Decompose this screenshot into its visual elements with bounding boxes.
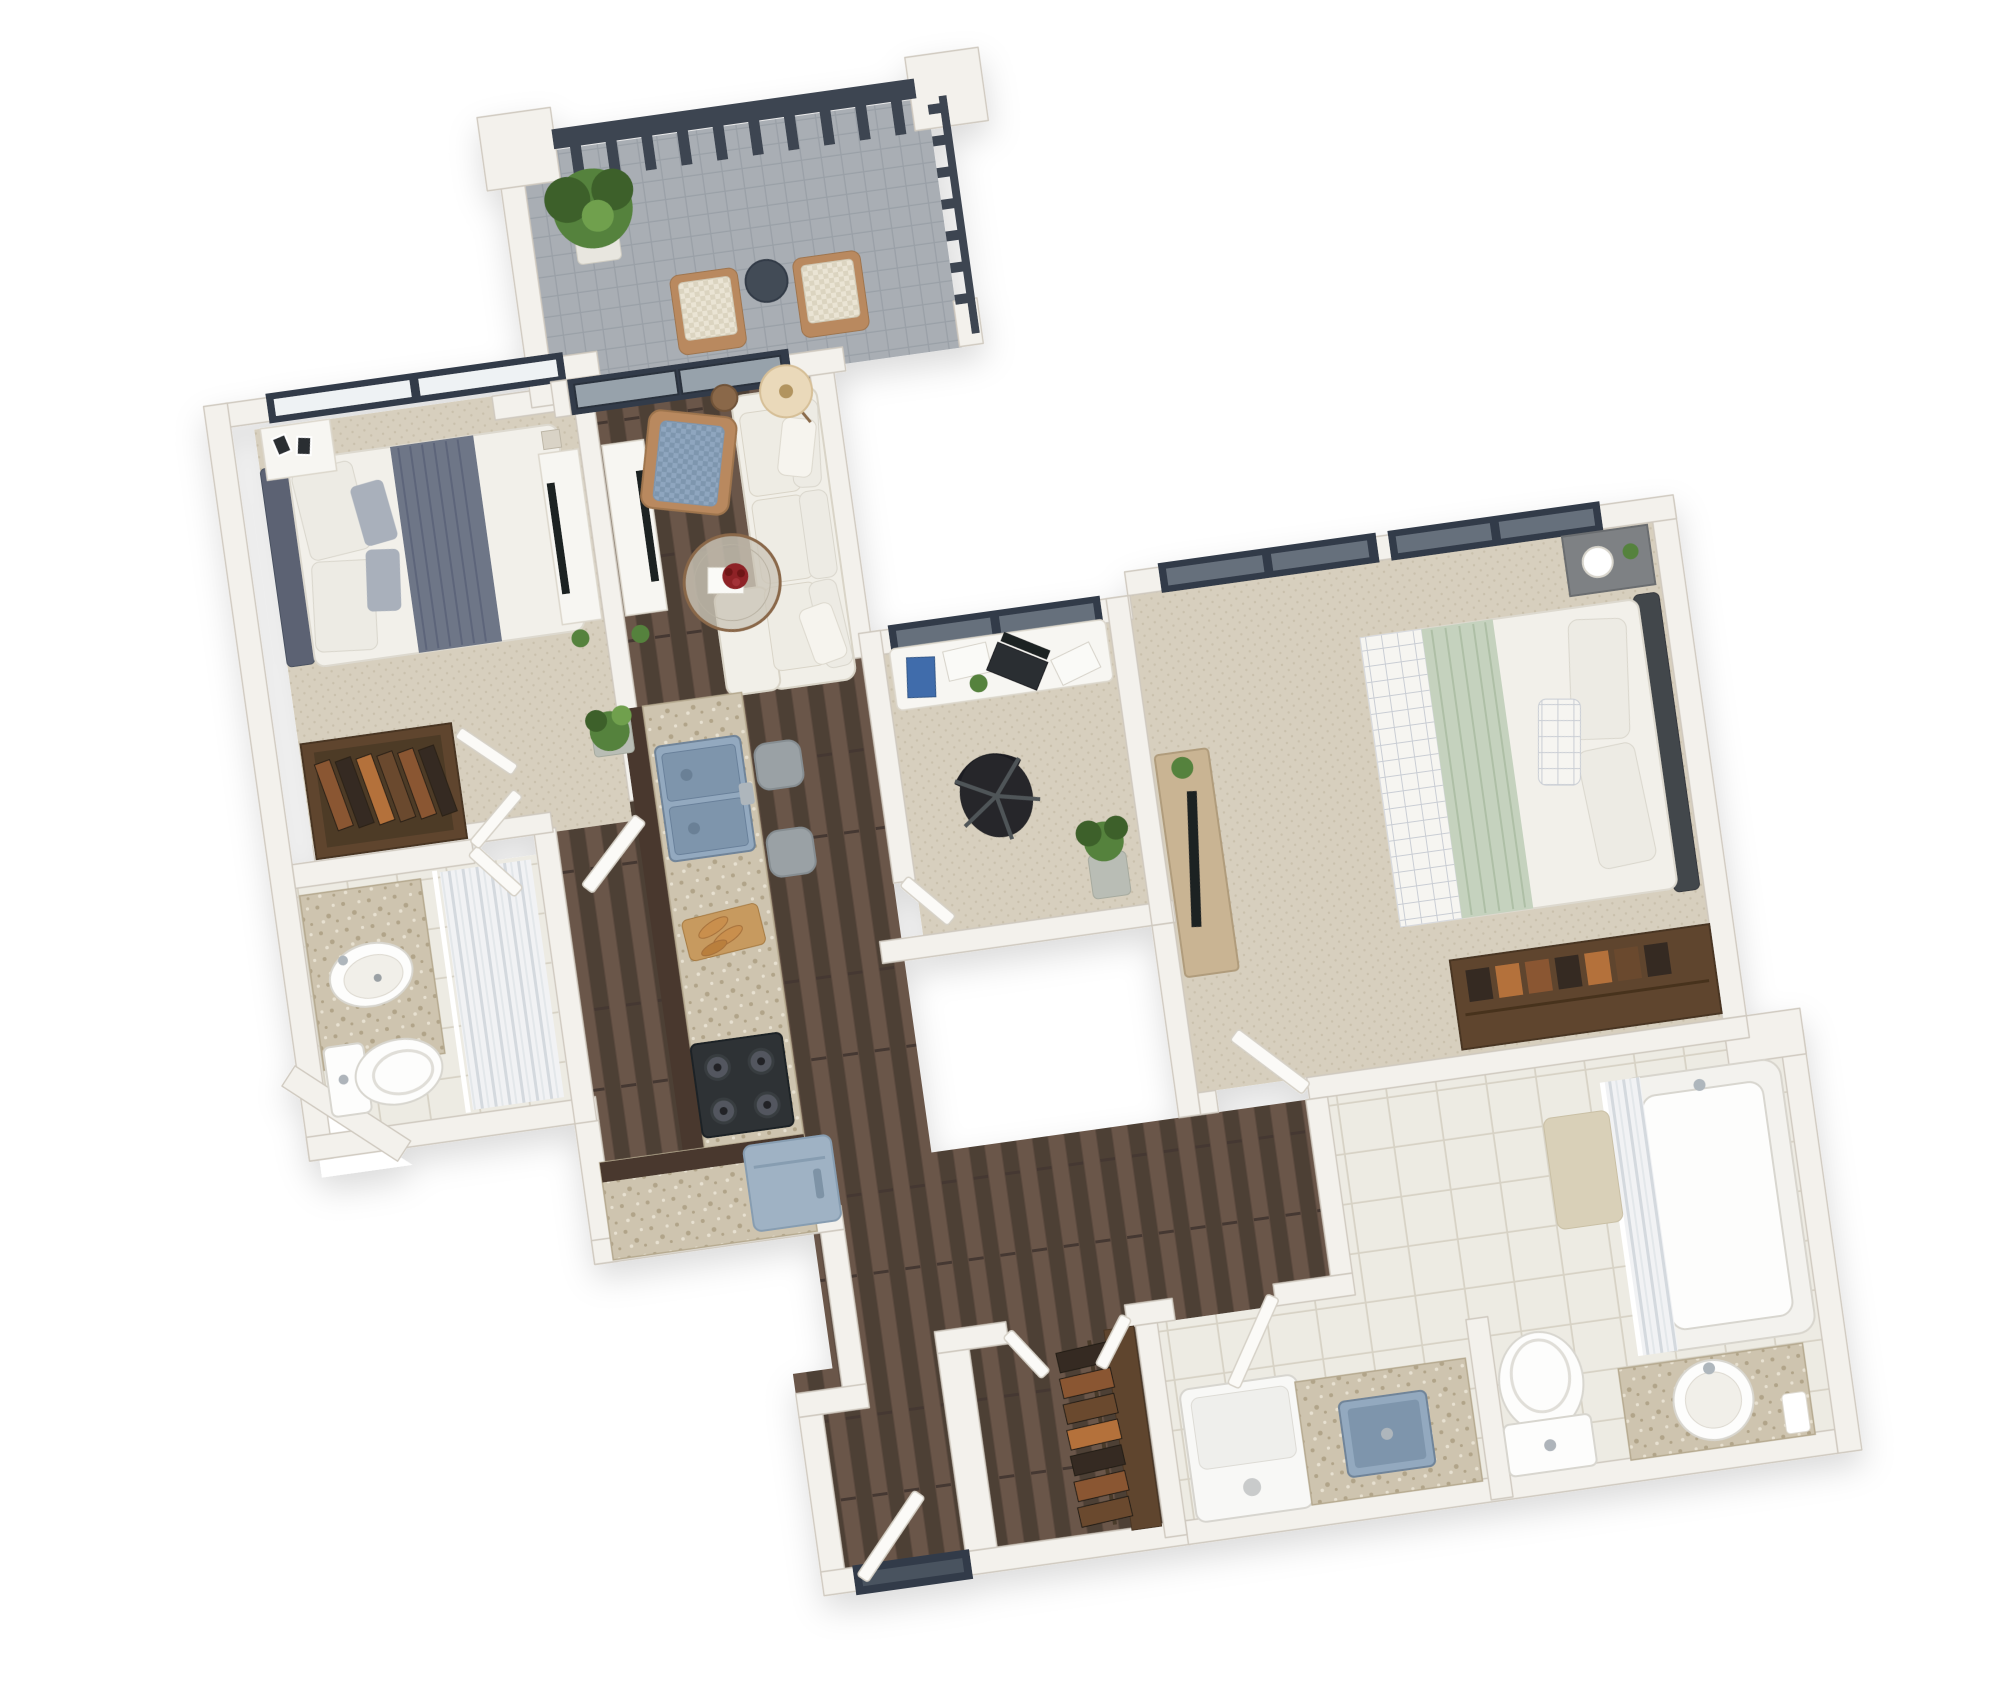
folded-clothes: [1614, 946, 1642, 981]
throw-pillow: [777, 417, 817, 478]
folded-clothes: [1584, 950, 1612, 985]
bar-stool: [753, 739, 805, 791]
washer-lid: [1190, 1385, 1297, 1470]
bathtub: [1602, 1058, 1817, 1356]
armchair-cushion: [653, 420, 725, 506]
folded-clothes: [1644, 942, 1672, 977]
floor-plan-svg: [0, 0, 2000, 1700]
sink-basin: [661, 744, 741, 802]
floor-plan-canvas: [0, 0, 2000, 1700]
accent-pillow: [365, 549, 401, 612]
nightstand: [260, 419, 337, 480]
folded-clothes: [1525, 959, 1553, 994]
nightstand-2: [1562, 525, 1656, 596]
folded-clothes: [1554, 955, 1582, 990]
patio-chair: [792, 250, 870, 339]
towel: [1781, 1391, 1810, 1434]
closet-master: [300, 723, 467, 859]
laundry-counter: [1295, 1358, 1483, 1505]
fridge: [743, 1134, 842, 1231]
armchair: [640, 409, 738, 516]
balcony-pillar-west: [477, 107, 561, 191]
photo-frame: [297, 437, 312, 455]
checkered-pillow: [1538, 699, 1580, 785]
folded-clothes: [1495, 963, 1523, 998]
bed-2: [1359, 592, 1700, 931]
stove: [690, 1032, 794, 1138]
bar-stool: [765, 826, 817, 878]
patio-chair: [669, 267, 747, 356]
washer: [1179, 1374, 1315, 1523]
wall-bedroom2-south-a: [1198, 1090, 1219, 1114]
lantern: [541, 429, 561, 449]
blue-notebook: [907, 657, 936, 698]
folded-clothes: [1465, 967, 1493, 1002]
sink-basin: [669, 797, 749, 855]
